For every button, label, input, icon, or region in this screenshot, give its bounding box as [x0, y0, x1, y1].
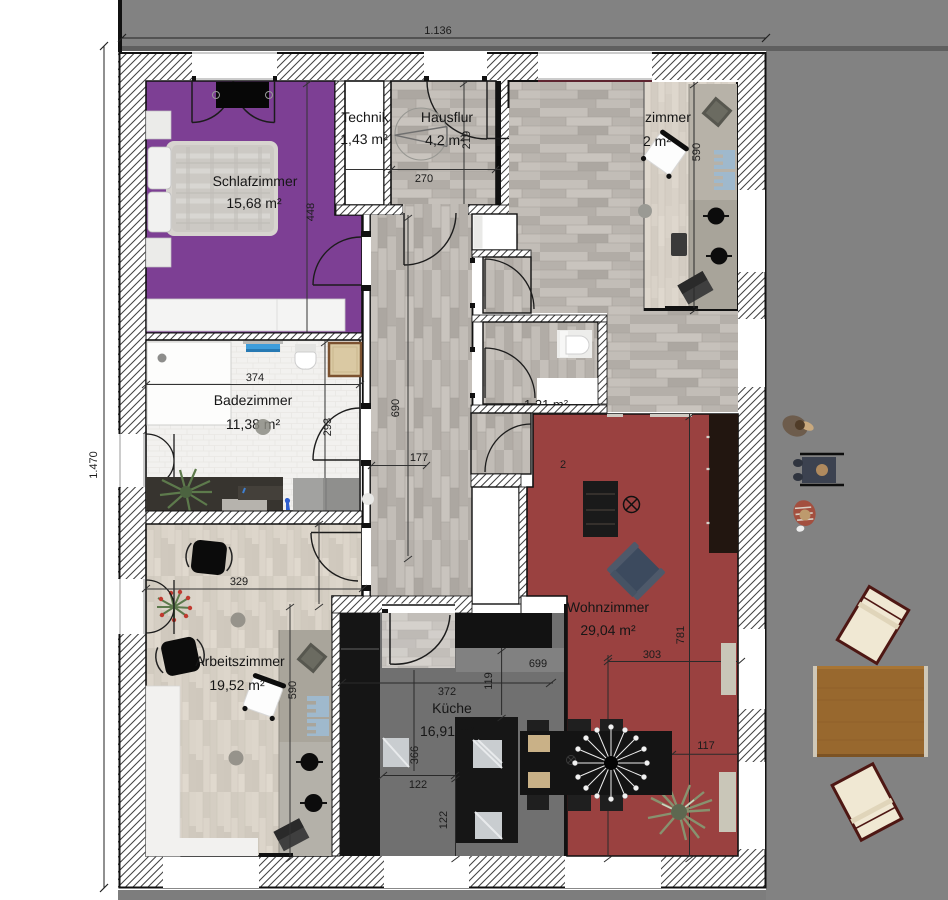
svg-text:117: 117 [697, 740, 715, 752]
svg-text:1,43 m²: 1,43 m² [340, 131, 388, 147]
svg-text:699: 699 [529, 658, 547, 670]
svg-text:Wohnzimmer: Wohnzimmer [567, 599, 650, 615]
svg-text:Badezimmer: Badezimmer [214, 392, 293, 408]
svg-text:29,04 m²: 29,04 m² [580, 622, 636, 638]
svg-text:448: 448 [305, 203, 317, 221]
svg-text:122: 122 [409, 779, 427, 791]
svg-text:1.136: 1.136 [424, 25, 452, 37]
svg-text:Hausflur: Hausflur [421, 109, 473, 125]
svg-text:4,2 m²: 4,2 m² [425, 132, 465, 148]
svg-text:590: 590 [287, 681, 299, 699]
svg-text:366: 366 [409, 746, 421, 764]
svg-text:Technik: Technik [341, 109, 389, 125]
svg-text:690: 690 [390, 399, 402, 417]
svg-text:15,68 m²: 15,68 m² [226, 195, 282, 211]
svg-text:2 m²: 2 m² [643, 133, 671, 149]
svg-text:16,91: 16,91 [420, 723, 455, 739]
svg-text:177: 177 [410, 452, 428, 464]
svg-text:270: 270 [415, 173, 433, 185]
svg-text:374: 374 [246, 372, 264, 384]
svg-text:2: 2 [560, 459, 566, 471]
svg-text:19,52 m²: 19,52 m² [209, 677, 265, 693]
svg-text:1.470: 1.470 [88, 451, 100, 479]
svg-text:590: 590 [691, 143, 703, 161]
svg-text:11,38 m²: 11,38 m² [226, 416, 281, 432]
svg-text:781: 781 [675, 626, 687, 644]
svg-text:372: 372 [438, 686, 456, 698]
svg-text:Schlafzimmer: Schlafzimmer [213, 173, 298, 189]
svg-text:zimmer: zimmer [645, 109, 691, 125]
svg-text:329: 329 [230, 576, 248, 588]
svg-text:m²: m² [459, 723, 476, 739]
svg-text:303: 303 [643, 649, 661, 661]
svg-text:119: 119 [483, 672, 495, 690]
svg-text:Arbeitszimmer: Arbeitszimmer [195, 653, 285, 669]
svg-text:Küche: Küche [432, 700, 472, 716]
svg-text:122: 122 [438, 811, 450, 829]
